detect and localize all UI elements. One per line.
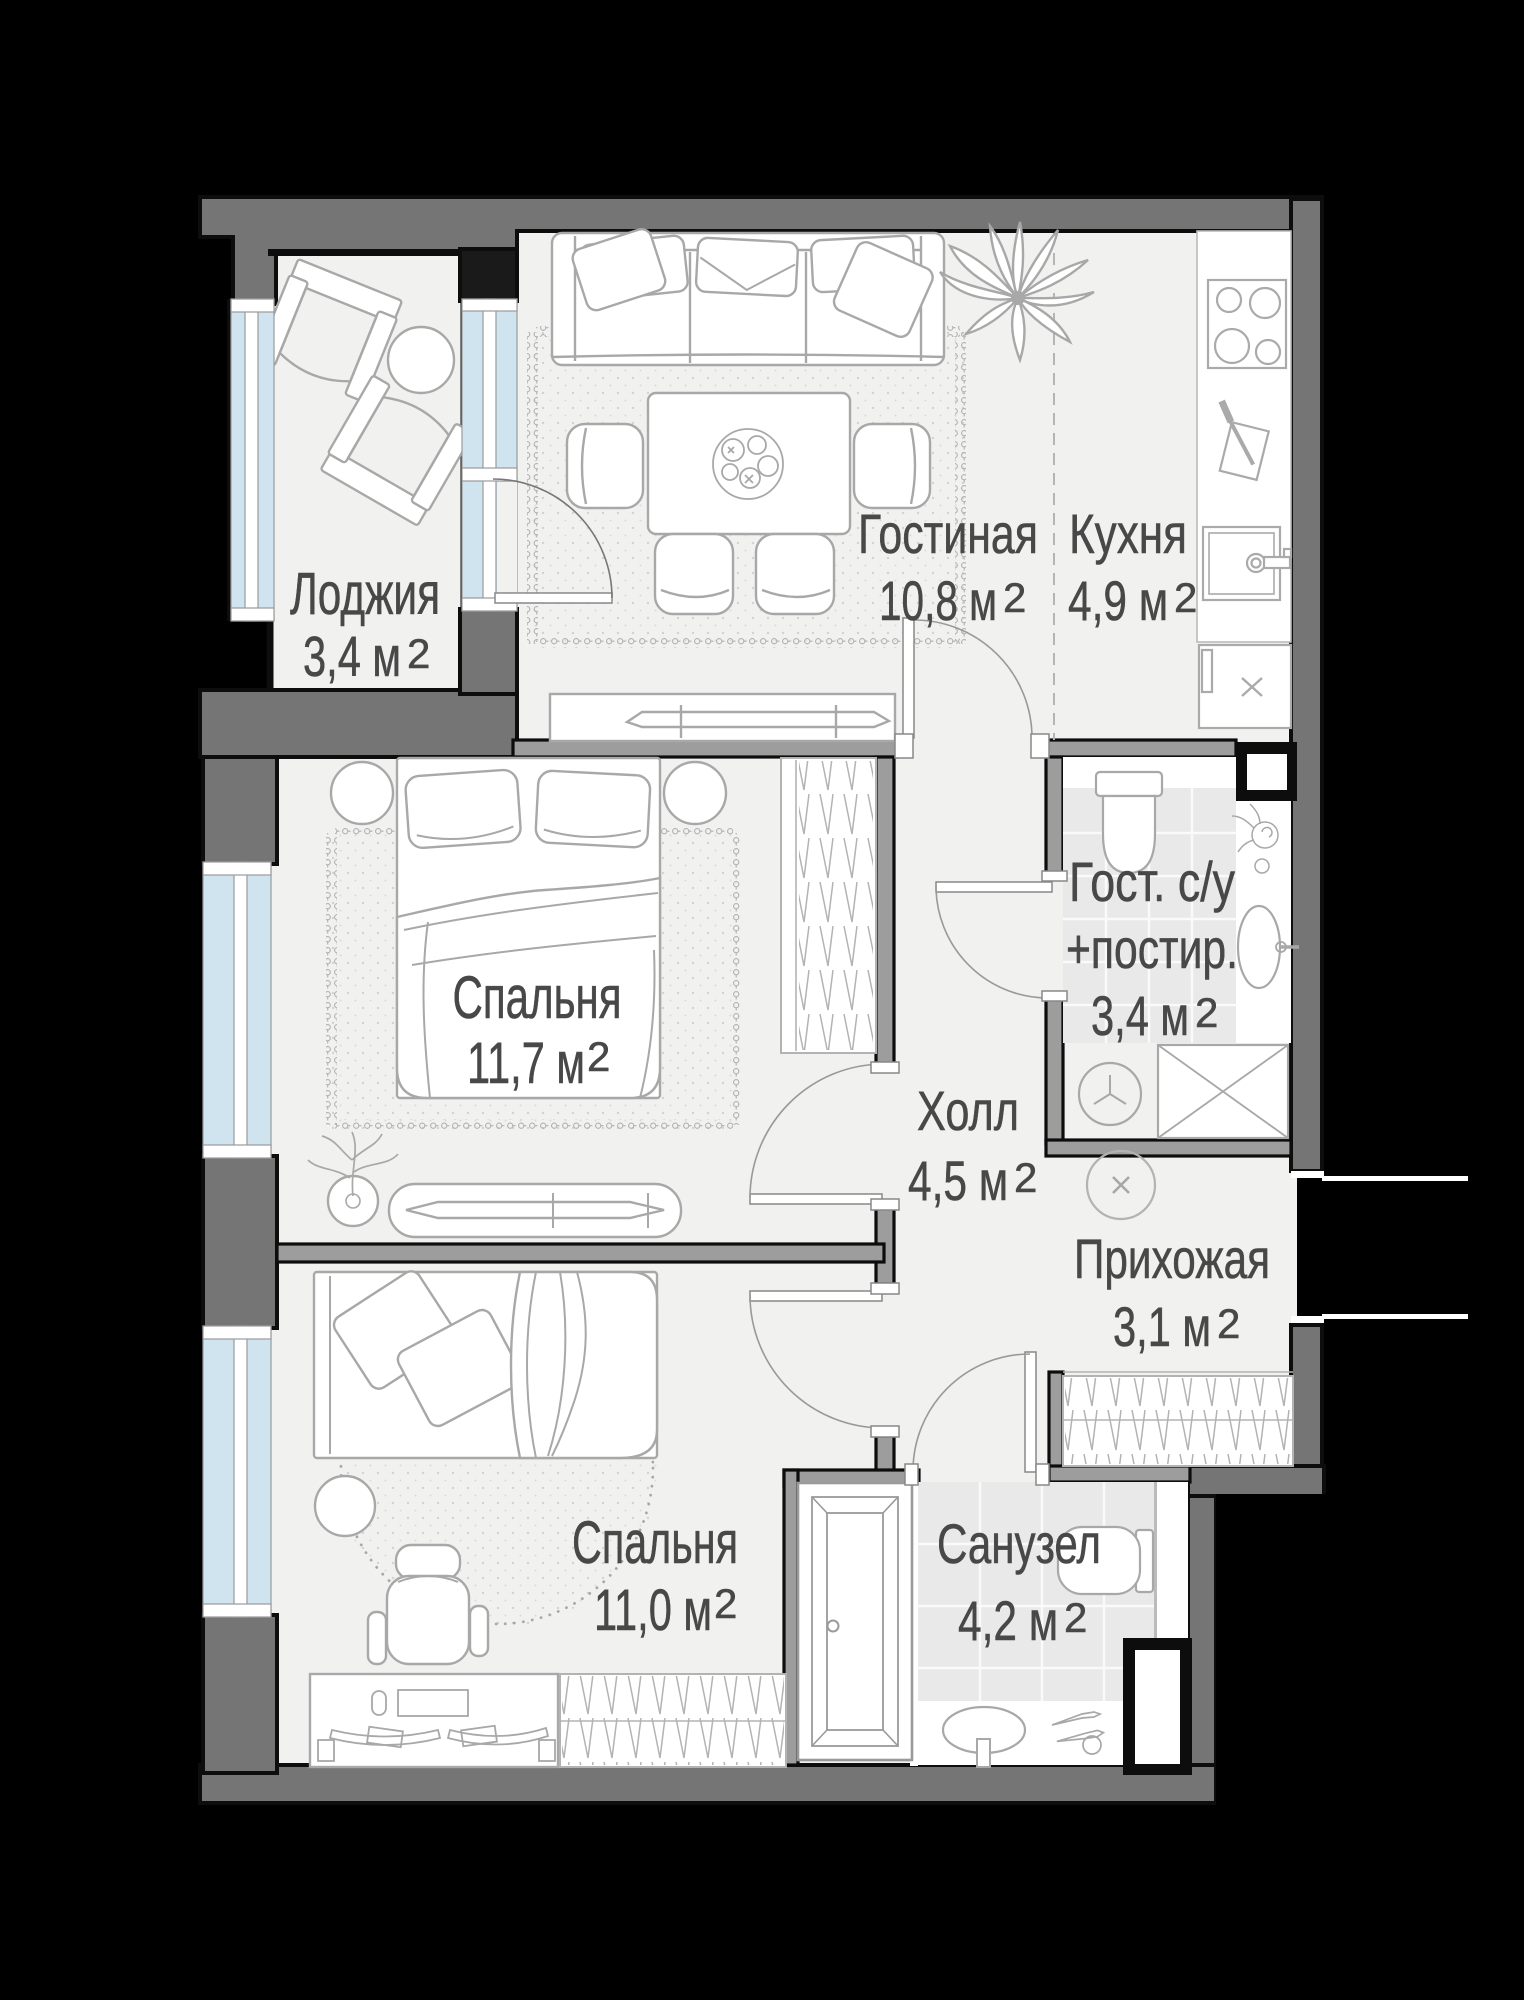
svg-text:Спальня: Спальня xyxy=(572,1509,738,1576)
svg-text:3,1 м: 3,1 м xyxy=(1113,1295,1211,1358)
svg-text:4,2 м: 4,2 м xyxy=(958,1589,1058,1652)
svg-text:Гостиная: Гостиная xyxy=(858,502,1038,565)
svg-text:Санузел: Санузел xyxy=(937,1512,1101,1575)
svg-text:2: 2 xyxy=(1174,574,1197,621)
svg-text:3,4 м: 3,4 м xyxy=(303,625,401,689)
svg-text:2: 2 xyxy=(1195,989,1218,1036)
svg-text:2: 2 xyxy=(1014,1154,1037,1201)
svg-text:Спальня: Спальня xyxy=(453,964,622,1031)
svg-text:4,9 м: 4,9 м xyxy=(1068,569,1168,632)
svg-text:2: 2 xyxy=(1217,1300,1240,1347)
svg-text:2: 2 xyxy=(407,630,430,677)
svg-text:3,4 м: 3,4 м xyxy=(1091,984,1189,1047)
svg-text:Гост. с/у: Гост. с/у xyxy=(1069,850,1235,913)
svg-text:4,5 м: 4,5 м xyxy=(908,1149,1008,1212)
svg-text:2: 2 xyxy=(1064,1594,1087,1641)
svg-text:+постир.: +постир. xyxy=(1066,917,1238,980)
svg-text:Лоджия: Лоджия xyxy=(290,561,440,627)
svg-text:11,7 м: 11,7 м xyxy=(467,1031,585,1096)
svg-text:11,0 м: 11,0 м xyxy=(594,1578,712,1643)
svg-text:2: 2 xyxy=(714,1580,737,1627)
svg-text:Прихожая: Прихожая xyxy=(1074,1227,1270,1290)
svg-text:2: 2 xyxy=(1003,574,1026,621)
svg-text:Холл: Холл xyxy=(917,1079,1019,1142)
svg-text:10,8 м: 10,8 м xyxy=(879,569,997,632)
svg-text:Кухня: Кухня xyxy=(1069,502,1187,565)
svg-text:2: 2 xyxy=(587,1033,610,1080)
